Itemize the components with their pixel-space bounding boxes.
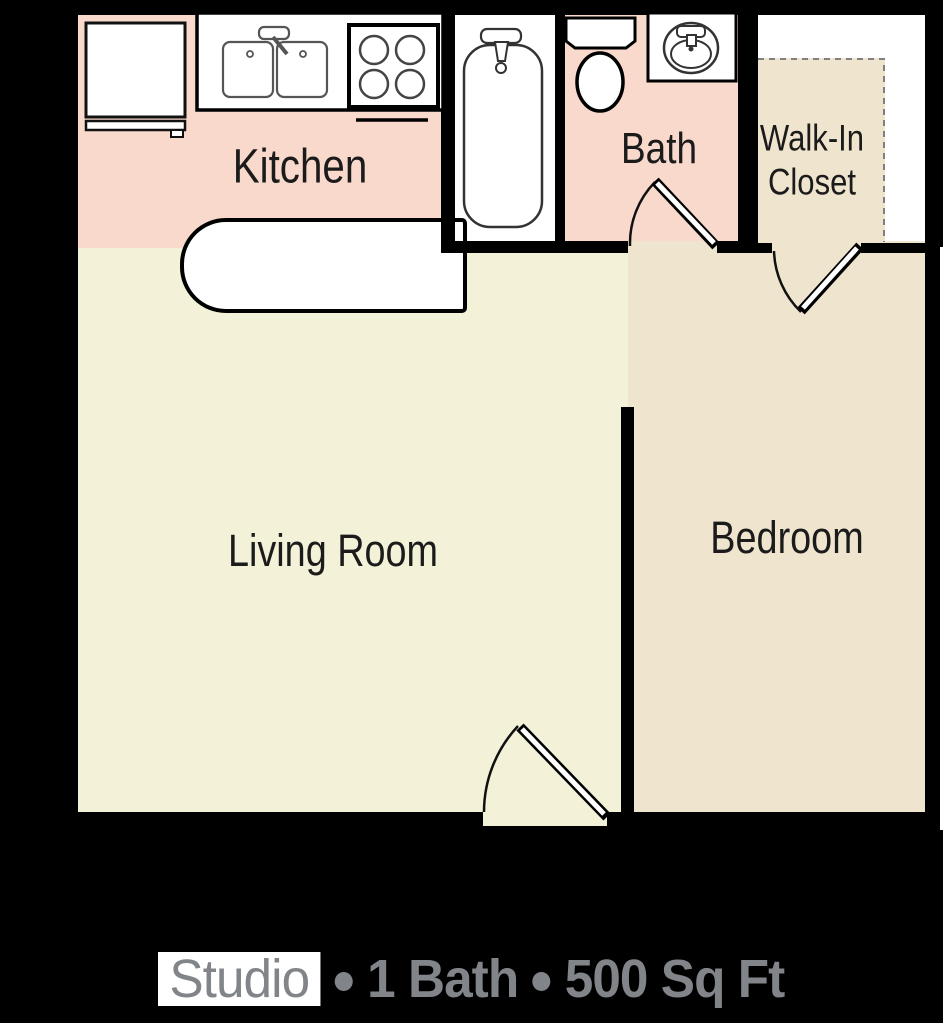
bullet-separator [532, 972, 550, 991]
unit-type-highlight: Studio [158, 952, 321, 1006]
entry-door [484, 726, 607, 817]
bath-count-label: 1 Bath [367, 948, 518, 1010]
living-room-label: Living Room [228, 525, 438, 577]
closet-door [774, 246, 860, 312]
walk-in-closet-label-line1: Walk-In [760, 117, 864, 161]
bathtub [464, 29, 542, 227]
caption: Studio 1 Bath 500 Sq Ft [158, 948, 784, 1010]
tub-faucet [481, 29, 521, 43]
toilet-tank [566, 18, 635, 48]
area-label: 500 Sq Ft [565, 948, 785, 1010]
unit-type-label: Studio [169, 948, 309, 1010]
floor-plan-canvas: Kitchen Bath Walk-In Closet Living Room … [0, 0, 943, 1023]
toilet [566, 18, 635, 111]
refrigerator-shelf [86, 121, 185, 130]
tub-drain [496, 63, 506, 73]
bedroom-label: Bedroom [710, 512, 863, 564]
bathroom-vanity [648, 13, 736, 81]
toilet-bowl [577, 53, 623, 111]
bath-door [630, 181, 716, 246]
kitchen-label: Kitchen [233, 140, 367, 195]
refrigerator [86, 23, 185, 137]
walk-in-closet-label-line2: Closet [760, 161, 864, 205]
bullet-separator [335, 972, 353, 991]
walk-in-closet-label: Walk-In Closet [760, 117, 864, 206]
stove-four-burner [349, 25, 438, 120]
bath-label: Bath [621, 124, 697, 174]
